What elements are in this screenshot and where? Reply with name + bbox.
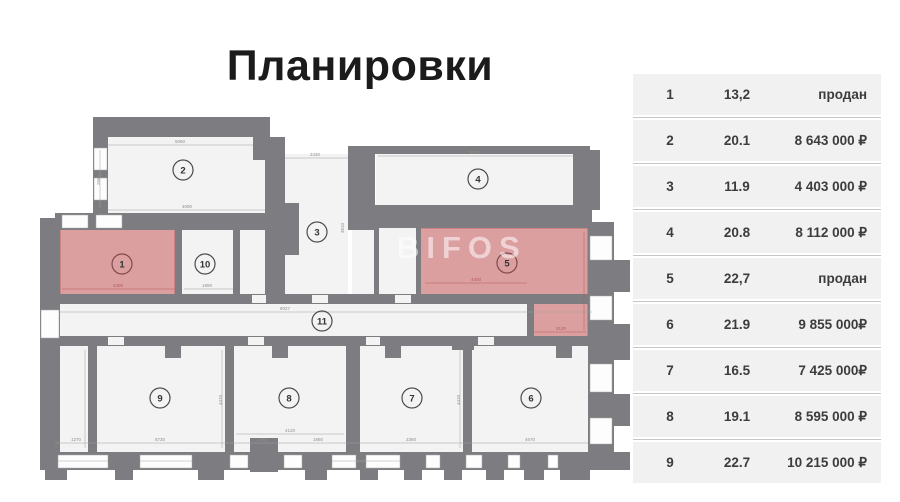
- table-row: 113,2продан: [633, 74, 881, 115]
- room-number-label: 7: [409, 394, 414, 405]
- table-cell-number: 3: [649, 179, 691, 194]
- table-cell-area: 22.7: [691, 455, 783, 470]
- table-cell-number: 8: [649, 409, 691, 424]
- room-number-label: 4: [475, 175, 481, 186]
- table-cell-area: 20.1: [691, 133, 783, 148]
- table-row: 220.18 643 000 ₽: [633, 120, 881, 161]
- table-cell-price: 4 403 000 ₽: [783, 179, 867, 195]
- table-cell-area: 13,2: [691, 87, 783, 102]
- room-number-label: 10: [200, 260, 211, 271]
- table-cell-number: 9: [649, 455, 691, 470]
- table-cell-area: 20.8: [691, 225, 783, 240]
- dimension-label: 4410: [456, 394, 461, 405]
- table-row: 522,7продан: [633, 258, 881, 299]
- table-cell-number: 1: [649, 87, 691, 102]
- dimension-label: 4410: [218, 394, 223, 405]
- table-cell-number: 6: [649, 317, 691, 332]
- dimension-label: 4090: [182, 204, 193, 209]
- dimension-label: 1860: [313, 437, 324, 442]
- table-row: 311.94 403 000 ₽: [633, 166, 881, 207]
- room-number-label: 9: [157, 394, 162, 405]
- dimension-label: 2430: [310, 152, 321, 157]
- dimension-label: 3610: [340, 222, 345, 233]
- price-table: 113,2продан220.18 643 000 ₽311.94 403 00…: [633, 74, 881, 483]
- table-cell-area: 11.9: [691, 179, 783, 194]
- dimension-label: 8027: [280, 306, 291, 311]
- room-number-label: 2: [180, 166, 185, 177]
- table-row: 922.710 215 000 ₽: [633, 442, 881, 483]
- room-number-label: 1: [119, 260, 125, 271]
- slide: Планировки: [0, 0, 900, 502]
- table-cell-area: 22,7: [691, 271, 783, 286]
- table-row: 420.88 112 000 ₽: [633, 212, 881, 253]
- table-cell-number: 7: [649, 363, 691, 378]
- table-cell-price: 9 855 000₽: [783, 317, 867, 333]
- table-cell-price: 7 425 000₽: [783, 363, 867, 379]
- table-cell-area: 19.1: [691, 409, 783, 424]
- table-cell-price: продан: [783, 271, 867, 286]
- dimension-label: 2360: [406, 437, 417, 442]
- table-cell-area: 21.9: [691, 317, 783, 332]
- table-cell-number: 4: [649, 225, 691, 240]
- room-number-label: 5: [504, 259, 510, 270]
- room-2: [108, 137, 265, 213]
- table-cell-price: продан: [783, 87, 867, 102]
- table-cell-price: 10 215 000 ₽: [783, 455, 867, 471]
- table-row: 819.18 595 000 ₽: [633, 396, 881, 437]
- dimension-label: 5060: [175, 139, 186, 144]
- table-cell-price: 8 112 000 ₽: [783, 225, 867, 241]
- dimension-label: 5730: [155, 437, 166, 442]
- dimension-label: 4670: [525, 437, 536, 442]
- dimension-label: 4400: [113, 283, 124, 288]
- table-cell-number: 2: [649, 133, 691, 148]
- room-number-label: 3: [314, 228, 319, 239]
- dimension-label: 4120: [285, 428, 296, 433]
- dimension-label: 1890: [202, 283, 213, 288]
- table-cell-price: 8 643 000 ₽: [783, 133, 867, 149]
- dimension-label: 2120: [556, 326, 567, 331]
- dimension-label: 4400: [471, 277, 482, 282]
- dimension-label: 2660: [96, 174, 101, 185]
- table-row: 621.99 855 000₽: [633, 304, 881, 345]
- table-cell-number: 5: [649, 271, 691, 286]
- room-number-label: 8: [286, 394, 291, 405]
- dimension-label: 1270: [71, 437, 82, 442]
- dimension-label: 3700: [470, 150, 481, 155]
- room-number-label: 6: [528, 394, 533, 405]
- room-number-label: 11: [317, 317, 328, 328]
- table-cell-area: 16.5: [691, 363, 783, 378]
- table-row: 716.57 425 000₽: [633, 350, 881, 391]
- table-cell-price: 8 595 000 ₽: [783, 409, 867, 425]
- dimension-label: 1848: [257, 437, 268, 442]
